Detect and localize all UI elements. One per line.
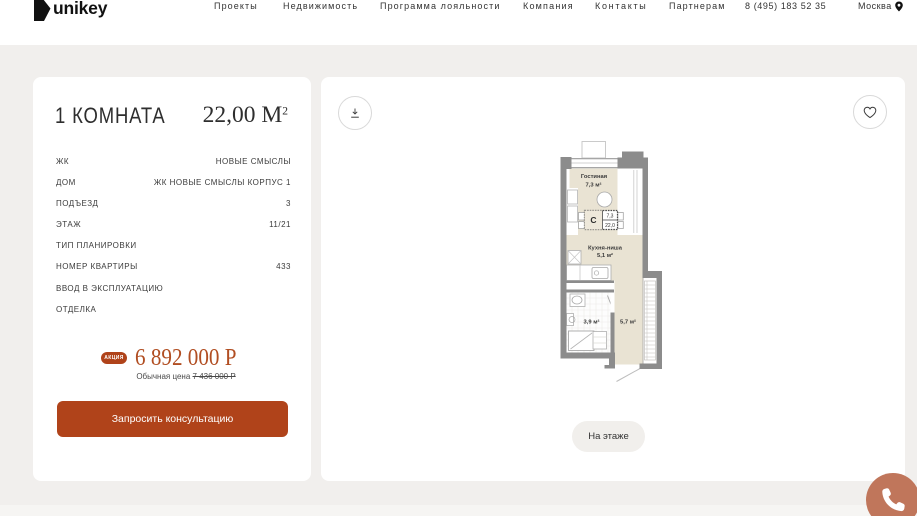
svg-text:С: С [590, 215, 596, 225]
svg-text:5,1 м²: 5,1 м² [597, 252, 613, 259]
svg-text:Гостиная: Гостиная [581, 174, 607, 180]
svg-text:7,3: 7,3 [607, 214, 614, 220]
svg-text:22,0: 22,0 [605, 223, 615, 229]
svg-text:Кухня-ниша: Кухня-ниша [588, 246, 623, 252]
svg-text:3,9 м²: 3,9 м² [584, 319, 600, 326]
svg-text:5,7 м²: 5,7 м² [620, 319, 636, 326]
svg-text:7,3 м²: 7,3 м² [586, 182, 602, 189]
